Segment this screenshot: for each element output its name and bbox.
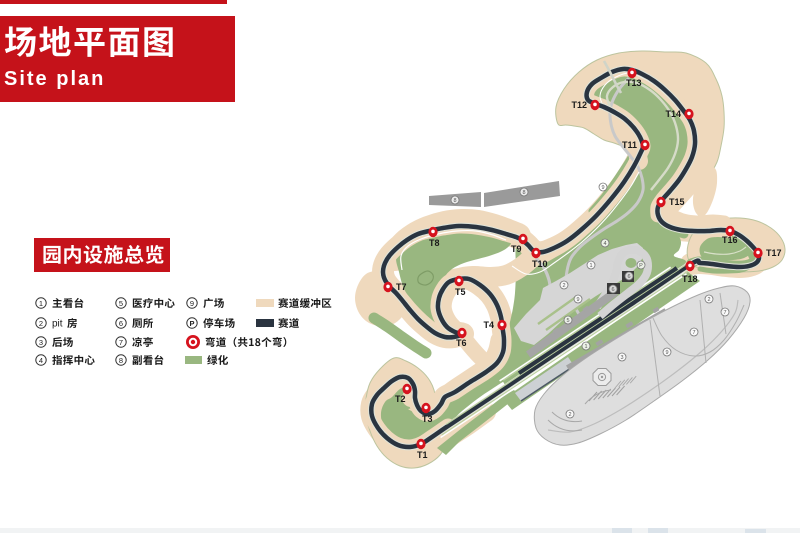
svg-text:T11: T11 <box>622 140 637 150</box>
svg-text:T13: T13 <box>626 78 642 88</box>
svg-text:9: 9 <box>576 297 579 303</box>
svg-text:T5: T5 <box>455 287 466 297</box>
svg-text:T6: T6 <box>456 338 467 348</box>
svg-text:8: 8 <box>453 198 456 204</box>
svg-text:1: 1 <box>589 263 592 269</box>
svg-text:4: 4 <box>603 241 606 247</box>
svg-text:6: 6 <box>611 287 614 293</box>
svg-text:T18: T18 <box>682 274 698 284</box>
svg-text:5: 5 <box>566 318 569 324</box>
svg-text:T17: T17 <box>766 248 782 258</box>
svg-text:P: P <box>639 263 643 269</box>
svg-text:2: 2 <box>562 283 565 289</box>
svg-text:T10: T10 <box>532 259 548 269</box>
svg-text:T2: T2 <box>395 394 406 404</box>
svg-text:2: 2 <box>707 297 710 303</box>
svg-text:T15: T15 <box>669 197 685 207</box>
svg-text:7: 7 <box>692 330 695 336</box>
svg-text:T8: T8 <box>429 238 440 248</box>
svg-text:T4: T4 <box>483 320 494 330</box>
svg-text:T9: T9 <box>511 244 522 254</box>
svg-text:8: 8 <box>522 190 525 196</box>
svg-text:3: 3 <box>620 355 623 361</box>
svg-text:T16: T16 <box>722 235 738 245</box>
svg-text:9: 9 <box>665 350 668 356</box>
svg-text:T12: T12 <box>571 100 587 110</box>
svg-text:T1: T1 <box>417 450 428 460</box>
svg-text:T14: T14 <box>665 109 681 119</box>
svg-text:1: 1 <box>584 344 587 350</box>
svg-text:T7: T7 <box>396 282 407 292</box>
svg-text:7: 7 <box>723 310 726 316</box>
svg-text:T3: T3 <box>422 414 433 424</box>
svg-text:2: 2 <box>568 412 571 418</box>
svg-text:9: 9 <box>601 185 604 191</box>
svg-text:6: 6 <box>627 274 630 280</box>
